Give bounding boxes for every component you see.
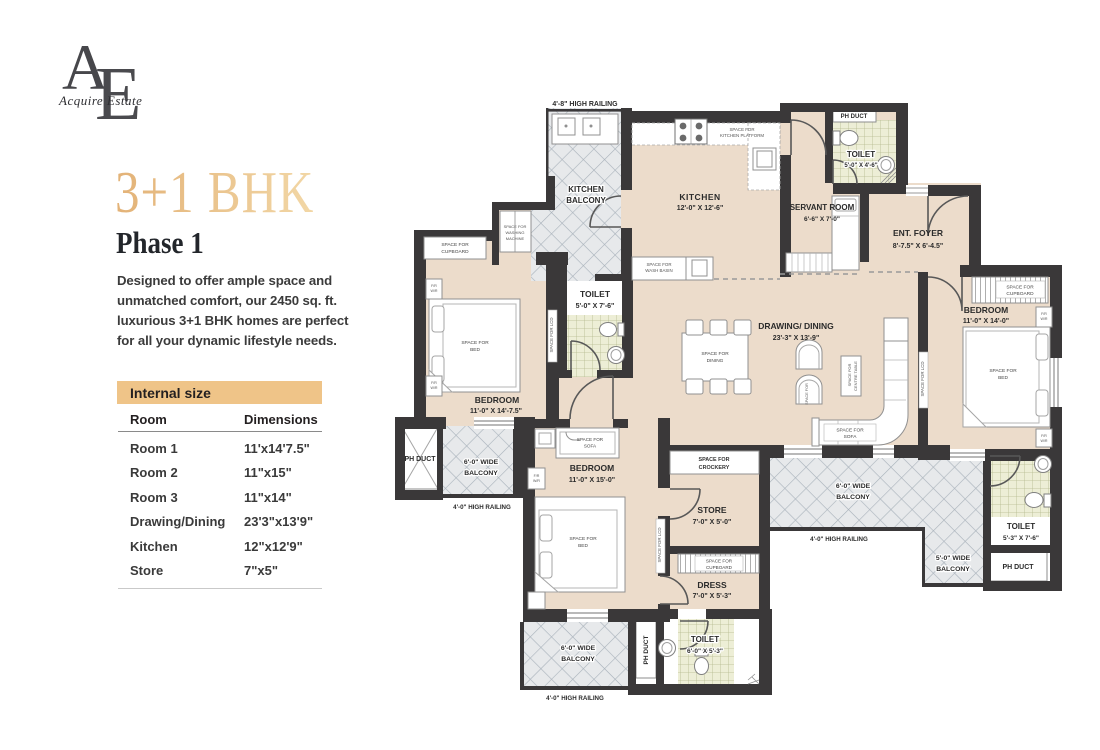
svg-text:SOFA: SOFA: [584, 444, 597, 449]
svg-text:SPACE FOR: SPACE FOR: [461, 340, 489, 346]
svg-text:SPACE FOR: SPACE FOR: [504, 224, 527, 229]
svg-text:5'-0" X 4'-6": 5'-0" X 4'-6": [844, 163, 877, 169]
svg-text:TOILET: TOILET: [847, 150, 875, 159]
svg-text:SPACE FOR: SPACE FOR: [836, 428, 864, 434]
svg-text:BEDROOM: BEDROOM: [964, 305, 1008, 315]
svg-text:4'-0" HIGH RAILING: 4'-0" HIGH RAILING: [453, 504, 511, 511]
svg-text:WASHING: WASHING: [506, 230, 525, 235]
svg-text:23'-3" X 13'-9": 23'-3" X 13'-9": [773, 335, 820, 342]
svg-text:TOILET: TOILET: [691, 635, 719, 644]
svg-text:6'-0" X 5'-3": 6'-0" X 5'-3": [687, 648, 723, 655]
svg-text:CENTRE TABLE: CENTRE TABLE: [853, 361, 858, 391]
svg-text:6'-0" WIDE: 6'-0" WIDE: [836, 483, 871, 490]
svg-text:ENT. FOYER: ENT. FOYER: [893, 228, 943, 238]
svg-text:BALCONY: BALCONY: [566, 196, 606, 205]
svg-text:SPACE FOR: SPACE FOR: [698, 457, 729, 463]
svg-text:F/R: F/R: [431, 381, 437, 385]
svg-text:6'-0" WIDE: 6'-0" WIDE: [561, 645, 596, 652]
svg-text:4'-8" HIGH RAILING: 4'-8" HIGH RAILING: [552, 101, 618, 108]
svg-text:5'-0" WIDE: 5'-0" WIDE: [936, 555, 971, 562]
svg-text:PH DUCT: PH DUCT: [404, 456, 436, 463]
svg-text:PH DUCT: PH DUCT: [841, 114, 868, 120]
svg-text:11'-0" X 14'-0": 11'-0" X 14'-0": [963, 318, 1009, 325]
svg-text:BED: BED: [470, 347, 480, 353]
svg-text:BALCONY: BALCONY: [836, 494, 870, 501]
svg-text:PH DUCT: PH DUCT: [643, 636, 650, 665]
svg-text:BEDROOM: BEDROOM: [570, 463, 614, 473]
svg-text:SPACE FOR LCD: SPACE FOR LCD: [920, 361, 925, 396]
svg-text:DRESS: DRESS: [697, 580, 727, 590]
svg-text:F/R: F/R: [534, 474, 540, 478]
svg-text:6'-0" WIDE: 6'-0" WIDE: [464, 459, 499, 466]
svg-text:WASH BASIN: WASH BASIN: [645, 268, 672, 273]
svg-text:PH DUCT: PH DUCT: [1002, 564, 1034, 571]
svg-text:4'-0" HIGH RAILING: 4'-0" HIGH RAILING: [810, 536, 868, 543]
svg-text:BALCONY: BALCONY: [561, 656, 595, 663]
svg-text:SPACE FOR: SPACE FOR: [1006, 285, 1034, 291]
svg-text:12'-0" X 12'-6": 12'-0" X 12'-6": [677, 205, 724, 212]
svg-text:CUPBOARD: CUPBOARD: [706, 565, 733, 570]
svg-text:5'-0" X 7'-6": 5'-0" X 7'-6": [576, 303, 615, 310]
svg-text:8'-7.5" X 6'-4.5": 8'-7.5" X 6'-4.5": [893, 243, 943, 250]
svg-text:SPACE FOR: SPACE FOR: [441, 242, 469, 248]
svg-text:TOILET: TOILET: [1007, 522, 1035, 531]
svg-text:11'-0" X 15'-0": 11'-0" X 15'-0": [569, 477, 615, 484]
svg-text:W/R: W/R: [431, 386, 438, 390]
svg-text:4'-0" HIGH RAILING: 4'-0" HIGH RAILING: [546, 695, 604, 702]
svg-text:7'-0" X 5'-0": 7'-0" X 5'-0": [693, 519, 732, 526]
svg-text:CUPBOARD: CUPBOARD: [441, 249, 469, 255]
svg-text:W/R: W/R: [533, 479, 540, 483]
svg-text:SOFA: SOFA: [844, 434, 858, 440]
svg-text:W/R: W/R: [1041, 439, 1048, 443]
svg-text:CROCKERY: CROCKERY: [699, 465, 730, 471]
svg-text:KITCHEN PLATFORM: KITCHEN PLATFORM: [720, 133, 764, 138]
svg-text:SPACE FOR LCD: SPACE FOR LCD: [549, 317, 554, 352]
svg-text:DINING: DINING: [707, 358, 724, 364]
svg-text:SPACE FOR: SPACE FOR: [847, 363, 852, 386]
svg-text:SPACE FOR: SPACE FOR: [701, 351, 729, 357]
svg-text:CUPBOARD: CUPBOARD: [1006, 291, 1034, 297]
svg-text:6'-6" X 7'-0": 6'-6" X 7'-0": [804, 216, 840, 223]
svg-text:SPACE FOR: SPACE FOR: [989, 368, 1017, 374]
svg-text:SPACE FOR: SPACE FOR: [729, 127, 754, 132]
svg-text:BED: BED: [998, 375, 1008, 381]
svg-text:SPACE FOR: SPACE FOR: [569, 536, 597, 542]
svg-text:KITCHEN: KITCHEN: [679, 192, 720, 202]
svg-text:SPACE FOR: SPACE FOR: [646, 262, 671, 267]
svg-text:SPACE FOR: SPACE FOR: [805, 383, 809, 405]
svg-text:SPACE FOR: SPACE FOR: [706, 559, 733, 564]
svg-text:SERVANT ROOM: SERVANT ROOM: [790, 203, 855, 212]
svg-text:11'-0" X 14'-7.5": 11'-0" X 14'-7.5": [470, 408, 522, 415]
svg-text:MACHINE: MACHINE: [506, 236, 525, 241]
svg-text:BALCONY: BALCONY: [464, 470, 498, 477]
svg-text:BEDROOM: BEDROOM: [475, 395, 519, 405]
svg-text:BED: BED: [578, 543, 588, 549]
svg-text:5'-3" X 7'-6": 5'-3" X 7'-6": [1003, 535, 1039, 542]
svg-text:SPACE FOR LCD: SPACE FOR LCD: [657, 527, 662, 562]
svg-text:DRAWING/ DINING: DRAWING/ DINING: [758, 321, 834, 331]
svg-text:BALCONY: BALCONY: [936, 566, 970, 573]
svg-text:W/R: W/R: [1041, 317, 1048, 321]
svg-text:KITCHEN: KITCHEN: [568, 185, 604, 194]
svg-text:TOILET: TOILET: [580, 289, 611, 299]
svg-text:W/R: W/R: [431, 289, 438, 293]
svg-text:7'-0" X 5'-3": 7'-0" X 5'-3": [693, 593, 732, 600]
svg-text:STORE: STORE: [697, 505, 726, 515]
svg-text:SPACE FOR: SPACE FOR: [577, 437, 604, 442]
svg-text:F/R: F/R: [1041, 434, 1047, 438]
svg-text:F/R: F/R: [1041, 312, 1047, 316]
svg-text:F/R: F/R: [431, 284, 437, 288]
